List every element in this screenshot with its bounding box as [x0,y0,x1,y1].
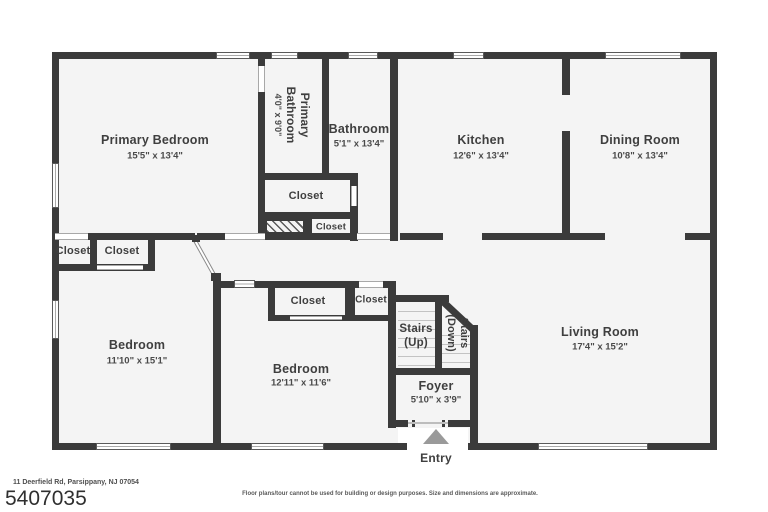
door-jamb [192,235,200,242]
primary-bedroom-dims: 15'5" x 13'4" [127,151,183,162]
primary-bathroom-line1: Primary [297,87,311,144]
window [271,52,298,59]
wall [383,281,396,288]
bathroom-dims: 5'1" x 13'4" [334,139,385,150]
entry-arrow-icon [423,429,449,444]
wall [710,52,717,450]
wall [322,52,329,180]
closet-label: Closet [289,190,324,202]
door-opening [357,233,390,240]
stairs-down-label: Stairs (Down) [444,314,470,351]
kitchen-dims: 12'6" x 13'4" [453,151,509,162]
closet-label: Closet [105,245,140,257]
wall [88,233,195,240]
bedroom-middle-label: Bedroom [273,362,329,376]
window [234,280,255,288]
wall [562,52,570,95]
closet-label: Closet [355,295,387,306]
living-room-dims: 17'4" x 15'2" [572,342,628,353]
bathroom-label: Bathroom [329,122,390,136]
entry-threshold [408,422,448,424]
disclaimer-text: Floor plans/tour cannot be used for buil… [242,491,538,497]
window [348,52,378,59]
window [538,443,648,450]
window [453,52,484,59]
entry-label: Entry [420,451,452,465]
wall [350,173,358,241]
wall [388,281,396,428]
kitchen-label: Kitchen [457,133,504,147]
window [216,52,250,59]
primary-bathroom-line2: Bathroom [283,87,297,144]
door-opening [97,265,143,270]
wall [390,420,404,427]
wall [390,52,398,241]
window [52,300,59,339]
wall [305,219,312,234]
door-opening [359,281,383,288]
wall [470,325,478,450]
wall [390,368,478,375]
door-opening [258,66,265,92]
stairs-up-label: Stairs [399,323,432,335]
wall [258,173,358,180]
bedroom-left-label: Bedroom [109,338,165,352]
property-address: 11 Deerfield Rd, Parsippany, NJ 07054 [13,479,139,486]
mls-number: 5407035 [5,487,87,511]
hatched-area [265,219,305,234]
wall [435,295,442,375]
door-opening [55,233,88,240]
wall [355,315,396,321]
dining-room-dims: 10'8" x 13'4" [612,151,668,162]
door-opening [225,233,265,240]
window [605,52,681,59]
wall [400,233,443,240]
stairs-up-label2: (Up) [404,337,428,349]
dining-room-label: Dining Room [600,133,680,147]
window [52,163,59,208]
wall [255,281,359,288]
wall [452,420,470,427]
wall [258,212,358,219]
closet-label: Closet [291,295,326,307]
window [96,443,171,450]
door-jamb [448,420,452,427]
wall [562,131,570,240]
primary-bathroom-label: Primary Bathroom 4'0" x 9'0" [272,87,312,144]
door-opening [290,316,342,320]
primary-bathroom-dims: 4'0" x 9'0" [272,87,283,144]
bedroom-middle-dims: 12'11" x 11'6" [271,378,331,389]
wall [685,233,717,240]
floor-plan-page: Primary Bedroom 15'5" x 13'4" Primary Ba… [0,0,768,512]
primary-bedroom-label: Primary Bedroom [101,133,209,147]
living-room-label: Living Room [561,325,639,339]
closet-label: Closet [316,222,346,233]
wall [213,278,221,450]
stairs-down-line2: (Down) [444,314,457,351]
bedroom-left-dims: 11'10" x 15'1" [107,356,168,367]
door-jamb [211,273,221,281]
door-opening [351,186,357,206]
stairs-up-treads [398,303,435,368]
foyer-dims: 5'10" x 3'9" [411,395,462,406]
closet-label: Closet [56,245,91,257]
window [251,443,324,450]
wall [265,233,357,240]
wall [197,233,225,240]
wall [90,240,97,266]
foyer-label: Foyer [418,379,453,393]
stairs-down-line1: Stairs [457,314,470,351]
wall [482,233,605,240]
